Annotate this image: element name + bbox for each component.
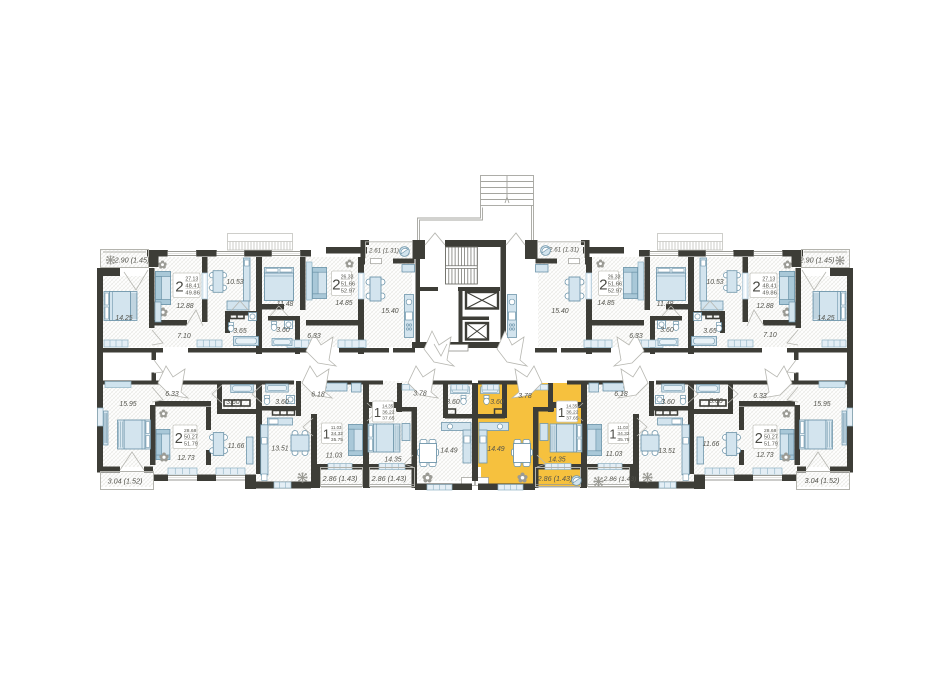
svg-text:14.49: 14.49	[440, 448, 457, 455]
svg-text:14.35: 14.35	[384, 457, 401, 464]
svg-text:14.35: 14.35	[566, 403, 578, 408]
svg-text:13.51: 13.51	[658, 448, 675, 455]
svg-text:6.18: 6.18	[311, 392, 325, 399]
svg-text:14.25: 14.25	[115, 315, 132, 322]
svg-text:10.53: 10.53	[226, 279, 243, 286]
svg-text:14.49: 14.49	[487, 446, 504, 453]
svg-text:14.35: 14.35	[382, 403, 394, 408]
svg-text:14.85: 14.85	[597, 300, 614, 307]
svg-text:12.88: 12.88	[756, 303, 773, 310]
svg-text:3.04 (1.52): 3.04 (1.52)	[805, 476, 840, 485]
svg-text:3.60: 3.60	[660, 327, 674, 334]
svg-text:11.66: 11.66	[228, 443, 245, 450]
svg-text:1: 1	[558, 405, 565, 420]
svg-text:12.88: 12.88	[176, 303, 193, 310]
svg-text:3.60: 3.60	[661, 399, 675, 406]
svg-text:15.40: 15.40	[551, 308, 568, 315]
svg-text:10.53: 10.53	[706, 279, 723, 286]
svg-text:1: 1	[323, 427, 330, 442]
svg-text:35.75: 35.75	[331, 437, 343, 443]
svg-text:7.10: 7.10	[177, 333, 191, 340]
svg-text:2: 2	[755, 431, 763, 447]
svg-text:3.60: 3.60	[446, 399, 460, 406]
svg-text:2: 2	[332, 277, 340, 294]
svg-text:51.79: 51.79	[764, 441, 778, 447]
svg-text:3.04 (1.52): 3.04 (1.52)	[108, 477, 143, 486]
svg-text:49.86: 49.86	[762, 290, 776, 296]
svg-text:52.97: 52.97	[608, 288, 622, 294]
svg-text:14.35: 14.35	[548, 457, 565, 464]
svg-text:36.22: 36.22	[382, 409, 395, 415]
svg-text:15.40: 15.40	[381, 308, 398, 315]
svg-text:14.85: 14.85	[335, 300, 352, 307]
svg-text:15.95: 15.95	[119, 401, 136, 408]
svg-text:3.65: 3.65	[233, 328, 247, 335]
svg-text:11.03: 11.03	[326, 453, 343, 460]
svg-text:7.10: 7.10	[763, 332, 777, 339]
svg-text:3.60: 3.60	[276, 327, 290, 334]
svg-text:6.33: 6.33	[307, 333, 321, 340]
svg-text:14.25: 14.25	[817, 315, 834, 322]
svg-text:2.90 (1.45): 2.90 (1.45)	[114, 256, 150, 265]
svg-text:6.33: 6.33	[753, 393, 767, 400]
svg-text:11.48: 11.48	[277, 301, 294, 308]
svg-text:49.86: 49.86	[185, 290, 199, 296]
svg-text:2.86 (1.43): 2.86 (1.43)	[603, 476, 637, 483]
svg-text:3.60: 3.60	[226, 399, 240, 406]
svg-text:2.61 (1.31): 2.61 (1.31)	[368, 248, 399, 255]
svg-text:2.86 (1.43): 2.86 (1.43)	[537, 474, 573, 483]
svg-text:2.61 (1.31): 2.61 (1.31)	[548, 247, 579, 254]
svg-text:3.60: 3.60	[490, 399, 504, 406]
svg-text:3.60: 3.60	[275, 399, 289, 406]
svg-text:15.95: 15.95	[813, 401, 830, 408]
svg-text:3.78: 3.78	[413, 391, 427, 398]
svg-text:51.79: 51.79	[184, 441, 198, 447]
svg-text:1: 1	[609, 427, 616, 442]
svg-text:3.60: 3.60	[709, 398, 723, 405]
svg-text:6.33: 6.33	[165, 391, 179, 398]
svg-text:34.32: 34.32	[617, 431, 629, 437]
svg-text:37.65: 37.65	[566, 415, 579, 421]
svg-text:3.78: 3.78	[518, 393, 532, 400]
svg-text:36.22: 36.22	[566, 409, 579, 415]
svg-text:35.75: 35.75	[617, 437, 629, 443]
svg-text:2: 2	[752, 279, 760, 296]
svg-text:1: 1	[374, 405, 381, 420]
svg-text:2.86 (1.43): 2.86 (1.43)	[322, 474, 358, 483]
svg-text:11.03: 11.03	[331, 425, 342, 430]
svg-text:11.48: 11.48	[657, 301, 674, 308]
svg-text:37.65: 37.65	[382, 415, 395, 421]
svg-text:12.73: 12.73	[177, 455, 194, 462]
svg-text:2.90 (1.45): 2.90 (1.45)	[799, 256, 835, 265]
svg-text:11.03: 11.03	[617, 425, 628, 430]
svg-text:2.86 (1.43): 2.86 (1.43)	[371, 474, 407, 483]
svg-text:12.73: 12.73	[756, 452, 773, 459]
svg-text:3.65: 3.65	[703, 328, 717, 335]
svg-text:13.51: 13.51	[271, 446, 288, 453]
svg-text:34.32: 34.32	[331, 431, 343, 437]
svg-text:2: 2	[175, 431, 183, 447]
svg-text:52.97: 52.97	[341, 288, 355, 294]
svg-text:6.18: 6.18	[614, 391, 628, 398]
svg-text:2: 2	[175, 279, 183, 296]
svg-text:6.33: 6.33	[629, 333, 643, 340]
svg-text:11.03: 11.03	[606, 451, 623, 458]
svg-text:11.66: 11.66	[703, 441, 720, 448]
svg-text:2: 2	[599, 277, 607, 294]
